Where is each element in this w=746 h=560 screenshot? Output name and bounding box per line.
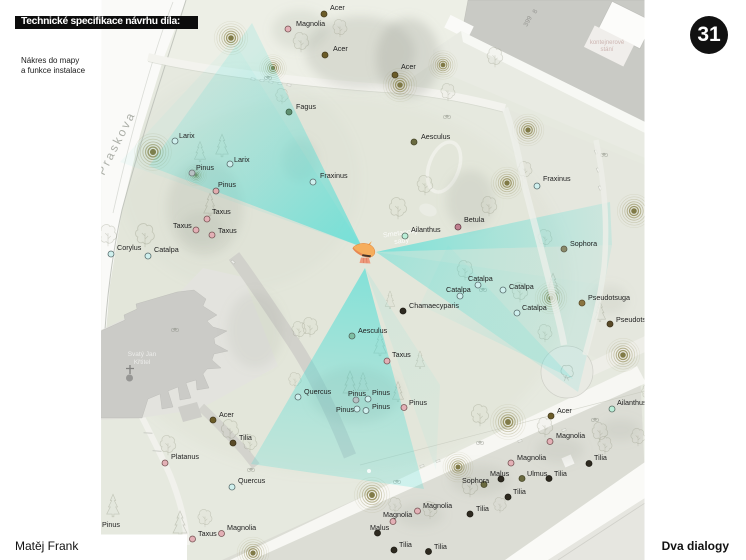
svg-text:Magnolia: Magnolia (556, 431, 585, 440)
svg-text:Sophora: Sophora (462, 476, 489, 485)
svg-text:Tilia: Tilia (239, 433, 252, 442)
svg-text:Tilia: Tilia (434, 542, 447, 551)
svg-text:Acer: Acer (401, 62, 416, 71)
svg-text:Platanus: Platanus (171, 452, 199, 461)
svg-text:Aesculus: Aesculus (358, 326, 388, 335)
svg-text:Taxus: Taxus (392, 350, 411, 359)
svg-text:Taxus: Taxus (212, 207, 231, 216)
svg-text:Sophora: Sophora (570, 239, 597, 248)
svg-text:Pinus: Pinus (372, 402, 390, 411)
svg-text:Ailanthus: Ailanthus (617, 398, 647, 407)
svg-text:Magnolia: Magnolia (383, 510, 412, 519)
svg-text:Magnolia: Magnolia (296, 19, 325, 28)
svg-text:Taxus: Taxus (173, 221, 192, 230)
svg-text:Svatý Jan: Svatý Jan (128, 351, 157, 358)
svg-text:Pinus: Pinus (348, 389, 366, 398)
svg-text:Chamaecyparis: Chamaecyparis (409, 301, 459, 310)
svg-text:Fraxinus: Fraxinus (543, 174, 571, 183)
svg-text:Taxus: Taxus (218, 226, 237, 235)
svg-text:Malus: Malus (370, 523, 390, 532)
svg-text:Pinus: Pinus (372, 388, 390, 397)
svg-text:Larix: Larix (179, 131, 195, 140)
svg-text:Křtitel: Křtitel (134, 359, 151, 366)
svg-text:Acer: Acer (557, 406, 572, 415)
svg-text:Ailanthus: Ailanthus (411, 225, 441, 234)
svg-text:Catalpa: Catalpa (468, 274, 493, 283)
svg-text:Fraxinus: Fraxinus (320, 171, 348, 180)
svg-text:Taxus: Taxus (198, 529, 217, 538)
svg-text:Pseudotsuga: Pseudotsuga (616, 315, 658, 324)
svg-text:Pinus: Pinus (102, 520, 120, 529)
svg-text:Pinus: Pinus (336, 405, 354, 414)
svg-text:Tilia: Tilia (399, 540, 412, 549)
svg-text:Corylus: Corylus (117, 243, 142, 252)
svg-text:Magnolia: Magnolia (227, 523, 256, 532)
svg-text:Quercus: Quercus (304, 387, 332, 396)
svg-text:Tilia: Tilia (513, 487, 526, 496)
svg-text:Pinus: Pinus (218, 180, 236, 189)
svg-text:Pinus: Pinus (196, 163, 214, 172)
svg-text:Betula: Betula (464, 215, 484, 224)
svg-text:Tilia: Tilia (554, 469, 567, 478)
svg-text:Magnolia: Magnolia (423, 501, 452, 510)
svg-text:stání: stání (600, 47, 613, 53)
svg-text:Aesculus: Aesculus (421, 132, 451, 141)
svg-text:Acer: Acer (219, 410, 234, 419)
svg-text:Ulmus: Ulmus (527, 469, 548, 478)
svg-text:Tilia: Tilia (594, 453, 607, 462)
svg-text:Pinus: Pinus (409, 398, 427, 407)
svg-text:kontejnerové: kontejnerové (590, 40, 625, 46)
svg-text:Fagus: Fagus (296, 102, 316, 111)
svg-text:Acer: Acer (333, 44, 348, 53)
svg-text:Catalpa: Catalpa (446, 285, 471, 294)
svg-text:Catalpa: Catalpa (509, 282, 534, 291)
svg-text:Catalpa: Catalpa (522, 303, 547, 312)
svg-text:Larix: Larix (234, 155, 250, 164)
svg-text:Quercus: Quercus (238, 476, 266, 485)
svg-text:Tilia: Tilia (476, 504, 489, 513)
svg-text:Malus: Malus (490, 469, 510, 478)
svg-text:Acer: Acer (330, 3, 345, 12)
svg-text:Catalpa: Catalpa (154, 245, 179, 254)
svg-text:Pseudotsuga: Pseudotsuga (588, 293, 630, 302)
svg-text:Magnolia: Magnolia (517, 453, 546, 462)
